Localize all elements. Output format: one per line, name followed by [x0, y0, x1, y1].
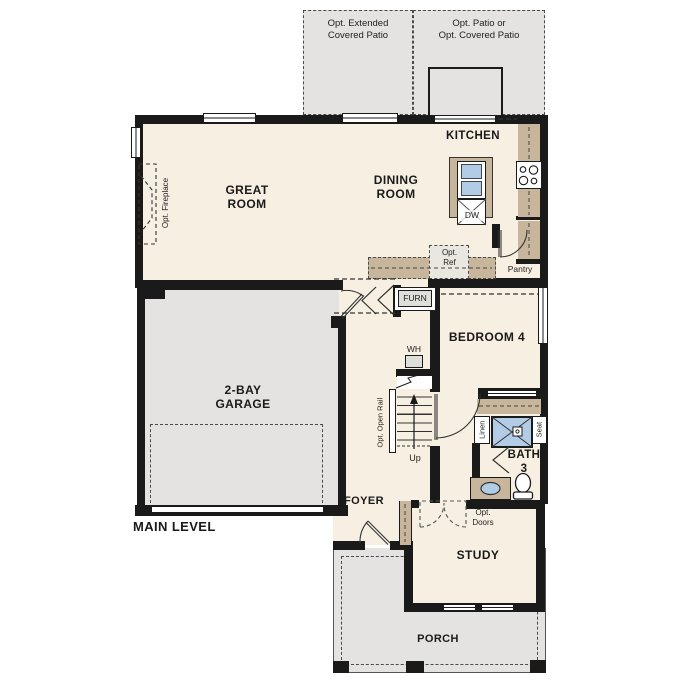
- garage-corner-notch: [143, 290, 165, 299]
- wall-kitchen-counter-bottom: [428, 278, 544, 288]
- water-heater: [405, 355, 423, 368]
- garage-label: 2-BAY GARAGE: [205, 383, 281, 411]
- closet-bypass-door: [487, 390, 537, 397]
- opt-extended-patio-label: Opt. Extended Covered Patio: [306, 18, 410, 42]
- dw-label: DW: [461, 210, 483, 221]
- main-level-label: MAIN LEVEL: [133, 519, 253, 534]
- stair-treads: [397, 389, 432, 447]
- opt-fireplace-label: Opt. Fireplace: [161, 153, 171, 253]
- porch-post: [406, 661, 424, 673]
- kitchen-sliding-door: [434, 115, 496, 123]
- wall-hall-stub: [331, 316, 339, 328]
- porch-post: [333, 661, 349, 673]
- garage-dashed-area: [150, 424, 323, 508]
- wall-study-left: [404, 544, 413, 607]
- pantry-shelf: [518, 221, 540, 259]
- great-room-label: GREAT ROOM: [215, 183, 279, 211]
- wall-garage-top: [137, 280, 343, 290]
- opt-ref-label: Opt. Ref: [431, 248, 468, 268]
- seat-label: Seat: [534, 410, 543, 450]
- linen-label: Linen: [477, 410, 486, 450]
- great-room-side-window: [131, 127, 141, 158]
- bath-vanity: [470, 477, 511, 500]
- floor-plan: GREAT ROOM DINING ROOM KITCHEN 2-BAY GAR…: [0, 0, 687, 687]
- foyer-label: FOYER: [339, 495, 389, 508]
- stair-open-rail: [389, 389, 396, 453]
- dining-room-label: DINING ROOM: [363, 173, 429, 201]
- wall-garage-right: [338, 316, 346, 514]
- bedroom4-label: BEDROOM 4: [440, 330, 534, 344]
- opt-patio-label: Opt. Patio or Opt. Covered Patio: [416, 18, 542, 42]
- patio-slab: [428, 67, 503, 118]
- garage-door: [152, 507, 323, 512]
- great-room-window: [203, 113, 256, 123]
- opt-doors-label: Opt. Doors: [468, 508, 498, 528]
- wall-study-right: [536, 500, 545, 612]
- pantry-label: Pantry: [498, 264, 542, 275]
- kitchen-label: KITCHEN: [440, 130, 506, 144]
- study-window: [443, 604, 476, 611]
- study-label: STUDY: [445, 548, 511, 562]
- opt-open-rail-label: Opt. Open Rail: [375, 373, 384, 473]
- wall-left-garage: [137, 288, 145, 513]
- porch-label: PORCH: [405, 633, 471, 646]
- bedroom4-window: [538, 287, 548, 344]
- cooktop: [516, 161, 542, 189]
- wall-foyer-bottom-left: [333, 541, 365, 550]
- study-window: [481, 604, 514, 611]
- wall-study-top-stub: [411, 500, 419, 508]
- up-label: Up: [404, 453, 426, 464]
- shower: [491, 416, 533, 448]
- foyer-study-column: [399, 501, 412, 545]
- wh-label: WH: [403, 344, 425, 355]
- wall-pantry-left: [492, 224, 500, 248]
- sink-basin: [461, 181, 482, 196]
- stair-landing: [397, 376, 432, 389]
- wall-nook-left: [430, 446, 440, 503]
- dining-room-window: [342, 113, 398, 123]
- furn-label: FURN: [394, 293, 436, 304]
- bath3-label: BATH 3: [502, 449, 546, 476]
- porch-post: [530, 660, 546, 673]
- sink-basin: [461, 164, 482, 179]
